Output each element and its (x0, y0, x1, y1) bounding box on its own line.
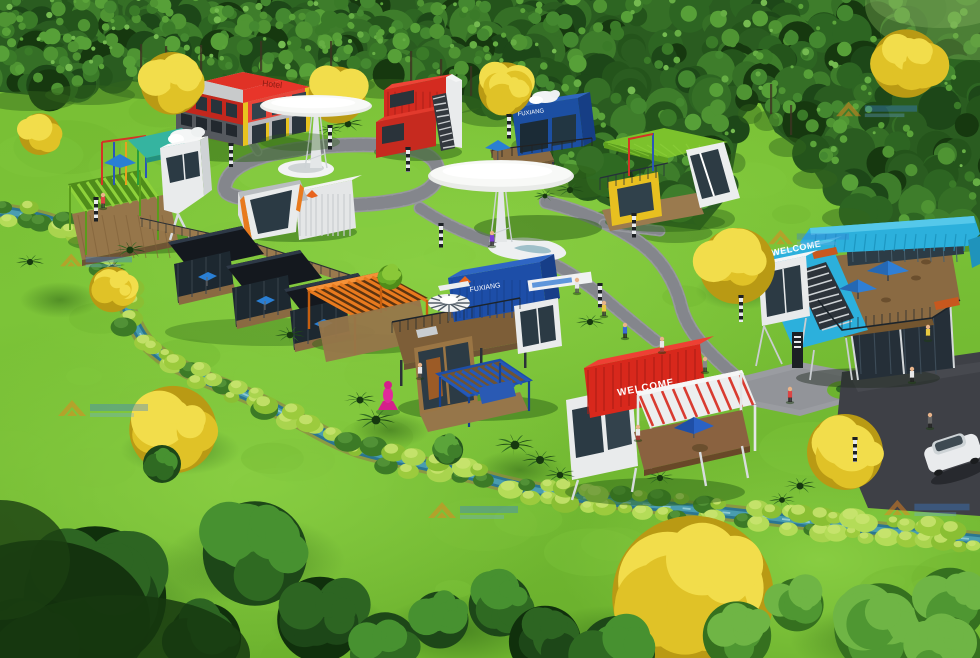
svg-text:Hotel: Hotel (262, 78, 283, 90)
